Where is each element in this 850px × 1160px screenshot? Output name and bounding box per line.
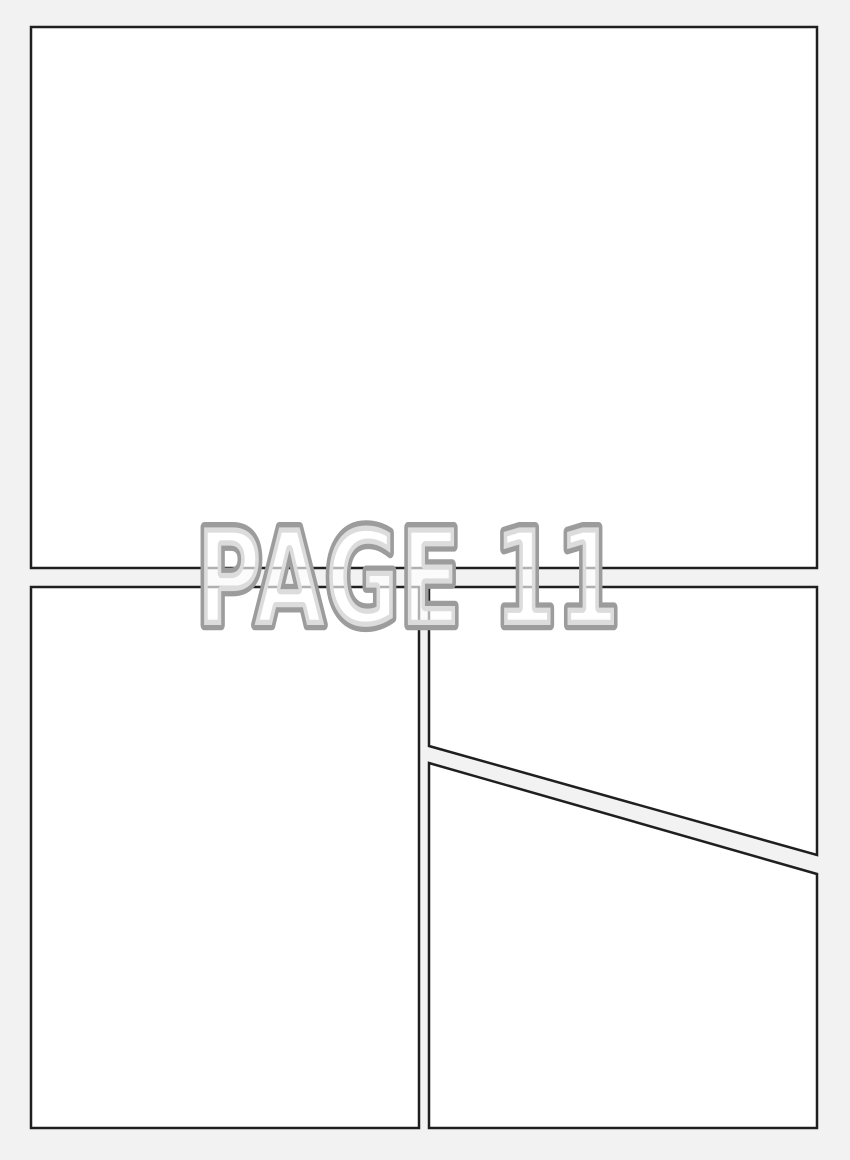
page-number-watermark: PAGE 11 xyxy=(196,502,620,658)
watermark-group: PAGE 11 xyxy=(196,502,620,658)
comic-panel-top xyxy=(31,27,817,568)
comic-page-canvas: PAGE 11 xyxy=(0,0,850,1160)
comic-page: PAGE 11 xyxy=(0,0,850,1160)
comic-panel-bottom-left xyxy=(31,587,419,1128)
